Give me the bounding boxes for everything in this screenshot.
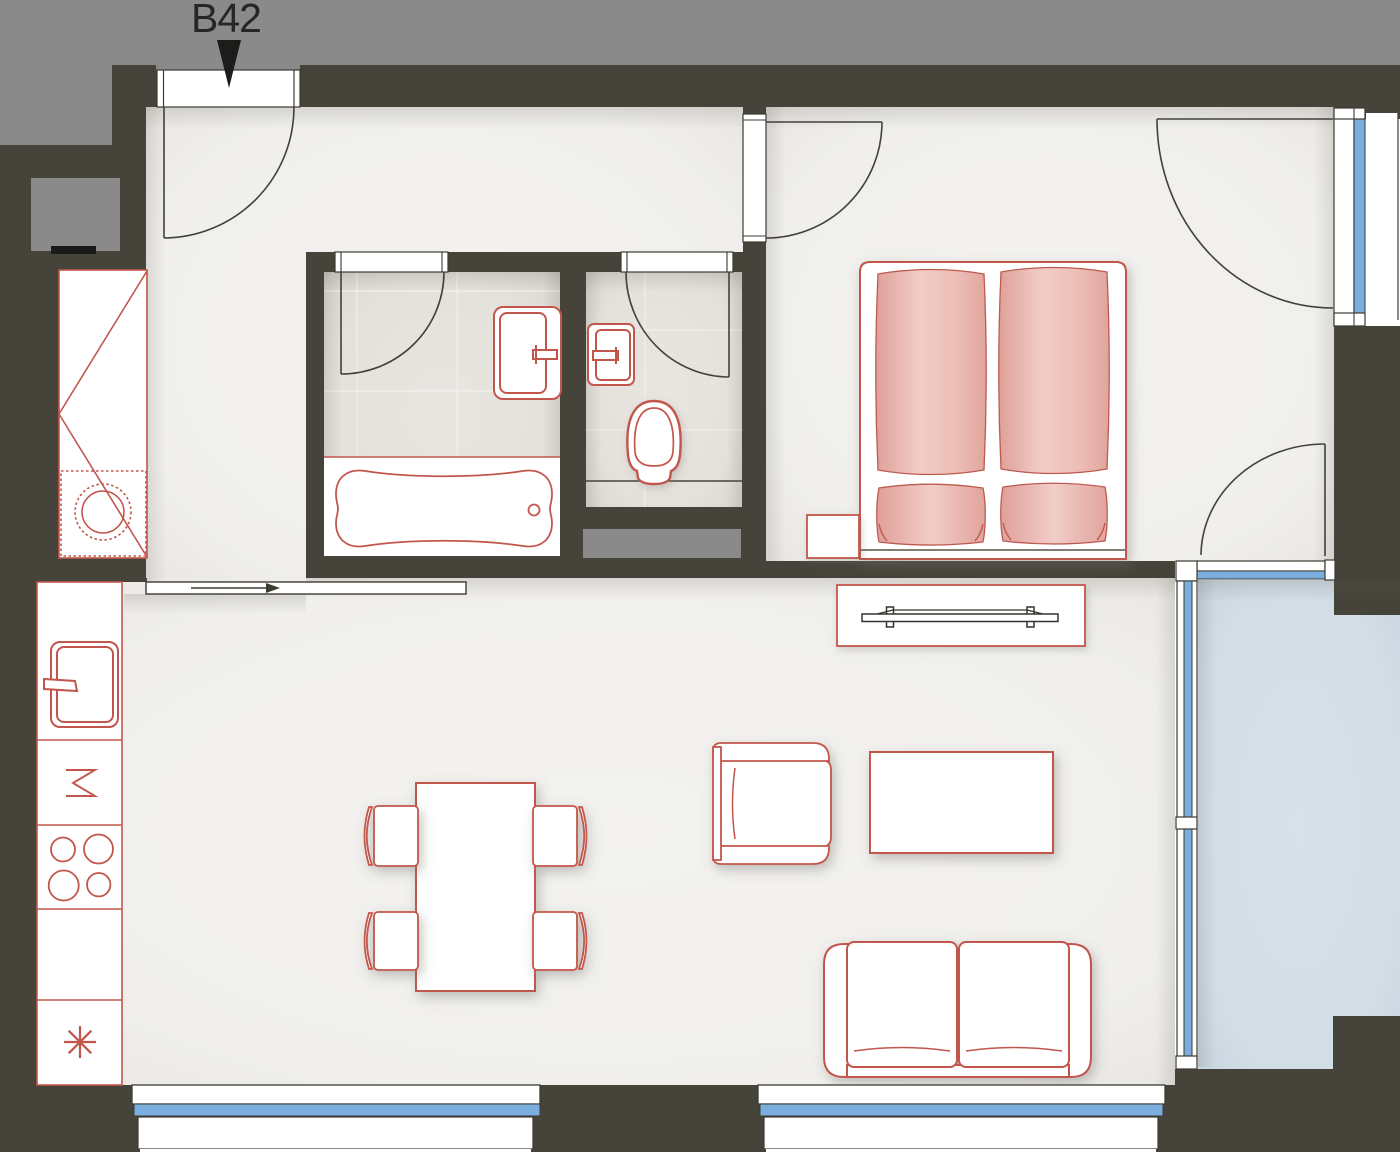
svg-text:B42: B42: [191, 0, 261, 41]
